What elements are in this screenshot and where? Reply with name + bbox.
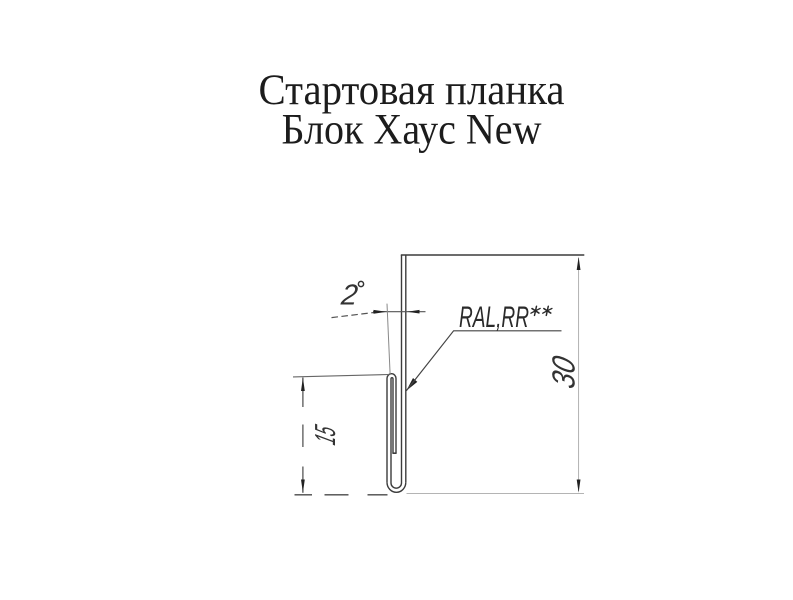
svg-text:15: 15 [309, 422, 341, 448]
svg-text:2: 2 [339, 280, 359, 312]
svg-text:30: 30 [546, 352, 581, 391]
svg-text:Блок Хаус New: Блок Хаус New [282, 105, 543, 153]
svg-text:RAL,RR: RAL,RR [459, 301, 529, 334]
